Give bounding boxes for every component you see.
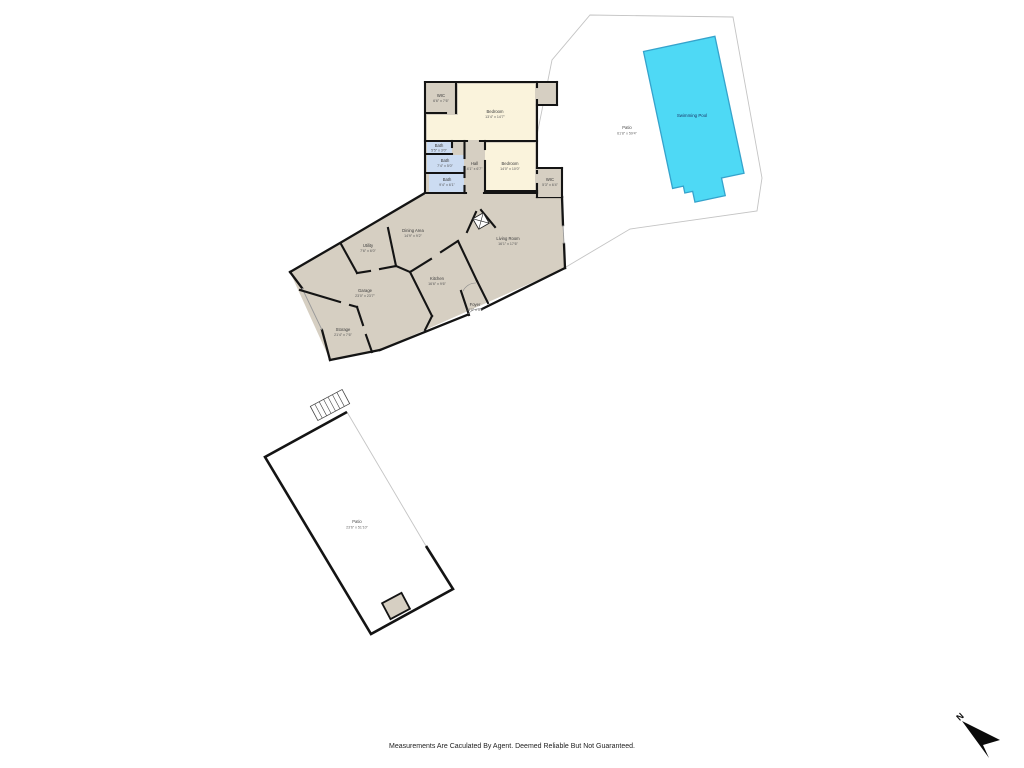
- utility-label: Utility: [363, 243, 374, 248]
- storage-dims: 21'4" x 7'6": [334, 333, 352, 337]
- bedroom-right-dims: 14'0" x 10'0": [500, 167, 520, 171]
- hall-dims: 4'1" x 6'7": [467, 167, 483, 171]
- bath-lower-label: Bath: [443, 177, 452, 182]
- lower-patio-area: Patio 23'6" x 51'10": [265, 389, 453, 634]
- floorplan-page: Swimming Pool Patio 61'8" x 59'4" Patio …: [0, 0, 1024, 768]
- floorplan-canvas: Swimming Pool Patio 61'8" x 59'4" Patio …: [0, 0, 1024, 768]
- lower-patio-label: Patio: [352, 519, 362, 524]
- swimming-pool-label: Swimming Pool: [677, 113, 707, 118]
- living-label: Living Room: [496, 236, 520, 241]
- kitchen-label: Kitchen: [430, 276, 445, 281]
- garage-dims: 23'0" x 23'7": [355, 294, 375, 298]
- pool-patio-dims: 61'8" x 59'4": [617, 132, 637, 136]
- north-label: N: [954, 711, 966, 723]
- wic-upper-dims: 6'6" x 7'6": [433, 99, 449, 103]
- bedroom-main-dims: 13'4" x 14'7": [485, 115, 505, 119]
- living-dims: 16'1" x 17'6": [498, 242, 518, 246]
- bath-mid-label: Bath: [441, 158, 450, 163]
- lower-section-floor: [290, 193, 565, 360]
- bath-small-label: Bath: [435, 143, 444, 148]
- bath-lower-dims: 9'4" x 6'1": [439, 183, 455, 187]
- foyer-label: Foyer: [470, 302, 481, 307]
- north-arrow-icon: [962, 721, 1000, 758]
- north-arrow: N: [954, 711, 1000, 758]
- utility-dims: 7'6" x 6'0": [360, 249, 376, 253]
- foyer-dims: 10'0" x 5'5": [466, 308, 484, 312]
- bedroom-main-label: Bedroom: [487, 109, 505, 114]
- main-house-lower-section: Dining Area 14'9" x 9'2" Utility 7'6" x …: [290, 193, 565, 360]
- wic-right-label: WIC: [546, 177, 554, 182]
- bath-small-dims: 5'5" x 3'0": [431, 149, 447, 153]
- disclaimer-text: Measurements Are Caculated By Agent. Dee…: [389, 743, 635, 750]
- garage-label: Garage: [358, 288, 373, 293]
- wic-upper-label: WIC: [437, 93, 445, 98]
- pool-patio-area: Swimming Pool Patio 61'8" x 59'4": [530, 15, 762, 267]
- dining-dims: 14'9" x 9'2": [404, 234, 422, 238]
- pool-patio-label: Patio: [622, 125, 632, 130]
- lower-patio-dims: 23'6" x 51'10": [346, 526, 368, 530]
- dining-label: Dining Area: [402, 228, 424, 233]
- kitchen-dims: 16'6" x 9'6": [428, 282, 446, 286]
- storage-label: Storage: [336, 327, 351, 332]
- hall-label: Hall: [471, 161, 478, 166]
- wic-right-dims: 5'3" x 6'4": [542, 183, 558, 187]
- bedroom-right-label: Bedroom: [502, 161, 520, 166]
- bath-mid-dims: 7'4" x 5'0": [437, 164, 453, 168]
